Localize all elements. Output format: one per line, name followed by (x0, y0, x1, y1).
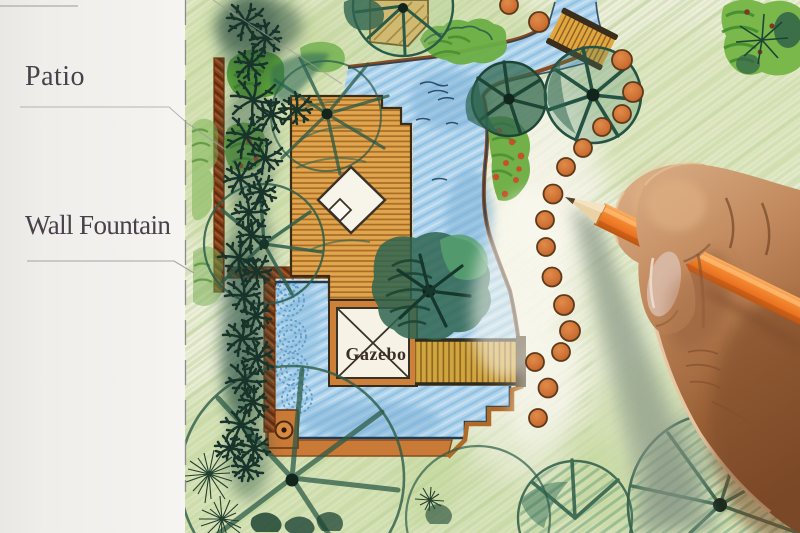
svg-text:Gazebo: Gazebo (346, 344, 407, 364)
svg-text:Patio: Patio (25, 61, 85, 92)
svg-text:Wall Fountain: Wall Fountain (25, 210, 171, 240)
